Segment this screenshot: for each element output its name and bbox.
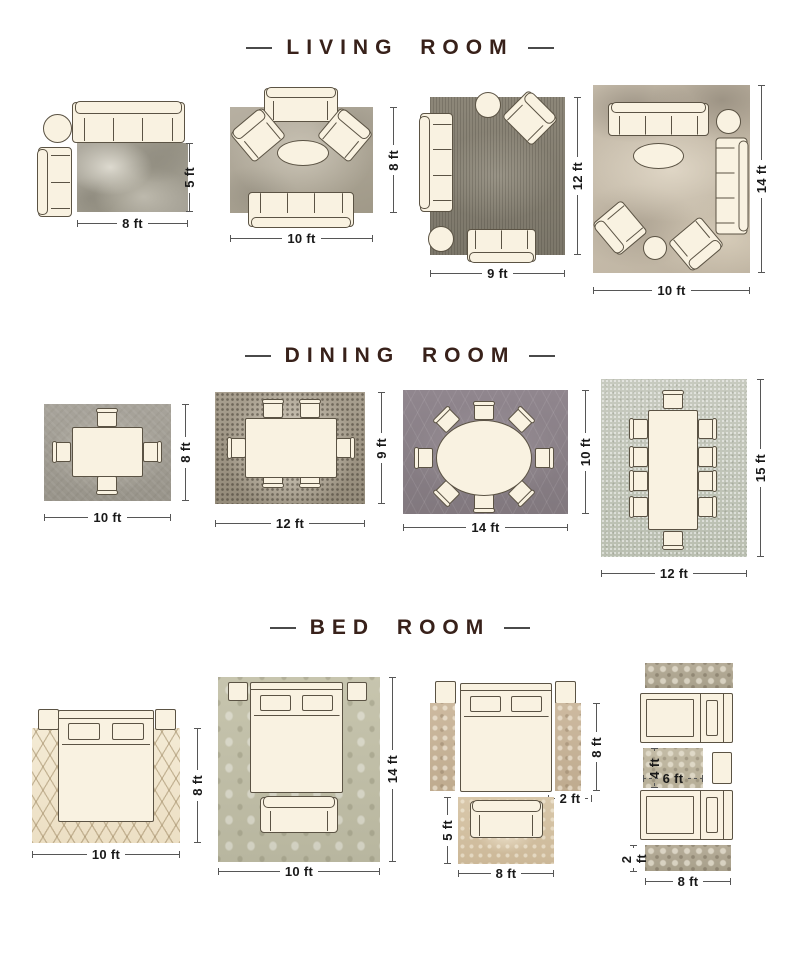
living2-sofa-bottom (248, 192, 354, 227)
dining2-table (245, 418, 337, 478)
living2-oval-coffee-table (277, 140, 329, 166)
dim-line (761, 198, 762, 273)
dining3-chair-left (415, 448, 433, 468)
dim-label: 5 ft (182, 167, 197, 188)
dim-line (321, 238, 373, 239)
bed2-bench (260, 797, 338, 833)
living3-pouf-bottom (428, 226, 454, 252)
living3-width-dim: 9 ft (430, 266, 565, 281)
dim-line (392, 789, 393, 862)
dim-label: 8 ft (122, 216, 143, 231)
dining4-chair-right4 (698, 497, 716, 517)
dim-label: 6 ft (663, 771, 684, 786)
dim-label: 8 ft (678, 874, 699, 889)
dim-label: 2 ft (619, 854, 649, 863)
dim-line (521, 873, 554, 874)
bed4-middle-width-dim: 6 ft (643, 771, 703, 786)
bed4-twin-bed-bottom (640, 790, 733, 840)
dining4-chair-left4 (630, 497, 648, 517)
bed1-height-dim: 8 ft (190, 728, 205, 843)
living4-width-dim: 10 ft (593, 283, 750, 298)
dim-line (688, 778, 703, 779)
section-title-label: LIVING ROOM (286, 36, 513, 60)
dim-line (513, 273, 565, 274)
dining4-chair-left2 (630, 447, 648, 467)
dim-line (601, 573, 655, 574)
bed2-nightstand-right (347, 682, 367, 701)
living4-height-dim: 14 ft (754, 85, 769, 273)
section-title-living: LIVING ROOM (0, 36, 800, 60)
dim-line (633, 868, 634, 872)
bed4-runner-height-dim: 2 ft (626, 845, 641, 871)
bed3-loveseat (470, 801, 543, 838)
dim-line (381, 463, 382, 504)
dim-label: 15 ft (753, 454, 768, 482)
dining1-chair-right (143, 442, 161, 462)
dim-line (458, 873, 491, 874)
dim-line (505, 527, 568, 528)
dining1-width-dim: 10 ft (44, 510, 171, 525)
dim-label: 10 ft (578, 438, 593, 466)
dim-line (585, 471, 586, 514)
dim-line (393, 175, 394, 213)
dim-label: 8 ft (190, 775, 205, 796)
dining2-width-dim: 12 ft (215, 516, 365, 531)
dining4-chair-right3 (698, 471, 716, 491)
dim-line (577, 97, 578, 157)
living2-width-dim: 10 ft (230, 231, 373, 246)
dim-line (693, 573, 747, 574)
dim-line (596, 703, 597, 732)
dim-line (761, 85, 762, 160)
title-dash (528, 47, 554, 50)
dining1-height-dim: 8 ft (178, 404, 193, 501)
dining3-chair-top (474, 402, 494, 420)
dim-label: 10 ft (287, 231, 315, 246)
dining4-chair-bottom (663, 531, 683, 549)
title-dash (529, 355, 555, 358)
bed4-twin-bed-top (640, 693, 733, 743)
bed3-runner-width-dim: 2 ft (548, 791, 592, 806)
dim-line (32, 854, 87, 855)
dining4-chair-left3 (630, 471, 648, 491)
bed4-runner-top (645, 663, 733, 688)
dim-line (585, 798, 592, 799)
bed1-bed (58, 710, 154, 822)
dim-line (585, 390, 586, 433)
dining3-width-dim: 14 ft (403, 520, 568, 535)
bed3-foot-width-dim: 8 ft (458, 866, 554, 881)
title-dash (245, 355, 271, 358)
dim-line (393, 107, 394, 145)
section-title-label: BED ROOM (310, 616, 491, 640)
living4-sofa-top (608, 103, 709, 136)
living1-chaise (38, 147, 72, 217)
dim-label: 8 ft (496, 866, 517, 881)
bed2-width-dim: 10 ft (218, 864, 380, 879)
dim-label: 9 ft (487, 266, 508, 281)
dim-line (447, 797, 448, 815)
dining1-chair-top (97, 409, 117, 427)
dim-line (392, 677, 393, 750)
bed3-nightstand-right (555, 681, 576, 704)
dim-label: 8 ft (589, 737, 604, 758)
dim-line (403, 527, 466, 528)
dining3-chair-right (535, 448, 553, 468)
living1-sofa (72, 102, 185, 143)
dim-line (691, 290, 750, 291)
dim-label: 5 ft (440, 820, 455, 841)
bed3-nightstand-left (435, 681, 456, 704)
dim-line (577, 195, 578, 255)
dim-line (430, 273, 482, 274)
dim-label: 10 ft (285, 864, 313, 879)
title-dash (504, 627, 530, 630)
dim-line (760, 379, 761, 449)
living1-width-dim: 8 ft (77, 216, 188, 231)
living3-height-dim: 12 ft (570, 97, 585, 255)
dim-line (189, 143, 190, 162)
dim-line (381, 392, 382, 433)
bed3-runner-height-dim: 8 ft (589, 703, 604, 791)
dim-label: 8 ft (178, 442, 193, 463)
dining4-width-dim: 12 ft (601, 566, 747, 581)
bed2-nightstand-left (228, 682, 248, 701)
bed3-runner-right (555, 703, 581, 791)
dining4-chair-top (663, 391, 683, 409)
section-title-label: DINING ROOM (285, 344, 516, 368)
living1-height-dim: 5 ft (182, 143, 197, 212)
bed2-bed (250, 682, 343, 793)
dining4-chair-right1 (698, 419, 716, 439)
dim-line (148, 223, 188, 224)
dim-label: 9 ft (374, 438, 389, 459)
dining2-height-dim: 9 ft (374, 392, 389, 504)
living3-pouf-top (475, 92, 501, 118)
dining1-chair-left (53, 442, 71, 462)
living3-sofa-left (420, 113, 453, 212)
dim-line (760, 487, 761, 557)
dim-line (218, 871, 280, 872)
living2-height-dim: 8 ft (386, 107, 401, 213)
section-title-bed: BED ROOM (0, 616, 800, 640)
dim-label: 14 ft (471, 520, 499, 535)
dim-line (189, 193, 190, 212)
dim-label: 2 ft (560, 791, 581, 806)
dim-line (633, 845, 634, 849)
living4-oval-coffee-table (633, 143, 684, 169)
dining1-table (72, 427, 143, 477)
dim-line (44, 517, 88, 518)
dim-line (230, 238, 282, 239)
dining1-chair-bottom (97, 476, 117, 494)
bed2-height-dim: 14 ft (385, 677, 400, 862)
dim-label: 12 ft (660, 566, 688, 581)
dim-label: 8 ft (386, 150, 401, 171)
living4-sofa-right (716, 138, 748, 235)
dining3-height-dim: 10 ft (578, 390, 593, 514)
dining2-chair-top1 (263, 400, 283, 418)
living2-sofa-top (264, 88, 338, 122)
bed3-bed (460, 683, 552, 792)
dim-line (309, 523, 365, 524)
bed3-foot-height-dim: 5 ft (440, 797, 455, 864)
dim-label: 14 ft (385, 755, 400, 783)
living1-rug (77, 143, 188, 212)
bed4-nightstand (712, 752, 732, 784)
bed1-nightstand-left (38, 709, 59, 730)
dim-label: 12 ft (276, 516, 304, 531)
dining4-table (648, 410, 698, 530)
dim-line (593, 290, 652, 291)
bed4-runner-bottom (645, 845, 731, 871)
dining4-chair-left1 (630, 419, 648, 439)
living4-pouf-small (643, 236, 667, 260)
dim-label: 12 ft (570, 162, 585, 190)
dim-line (215, 523, 271, 524)
dim-line (596, 762, 597, 791)
dim-line (654, 748, 655, 753)
dim-line (318, 871, 380, 872)
rug-size-guide: LIVING ROOM 5 ft 8 ft 8 ft 10 ft 12 ft 9… (0, 0, 800, 978)
dim-line (447, 846, 448, 864)
title-dash (246, 47, 272, 50)
dim-line (197, 801, 198, 843)
living3-loveseat (467, 229, 536, 262)
bed1-width-dim: 10 ft (32, 847, 180, 862)
section-title-dining: DINING ROOM (0, 344, 800, 368)
bed4-runner-width-dim: 8 ft (645, 874, 731, 889)
dim-label: 10 ft (657, 283, 685, 298)
dim-label: 10 ft (92, 847, 120, 862)
bed1-nightstand-right (155, 709, 176, 730)
dim-line (643, 778, 658, 779)
dining3-oval-table (436, 420, 532, 496)
dim-label: 14 ft (754, 165, 769, 193)
dining4-height-dim: 15 ft (753, 379, 768, 557)
bed3-runner-left (430, 703, 455, 791)
dim-line (645, 881, 673, 882)
title-dash (270, 627, 296, 630)
dim-line (185, 404, 186, 437)
dining2-chair-right (336, 438, 354, 458)
dining2-chair-top2 (300, 400, 320, 418)
dim-label: 10 ft (93, 510, 121, 525)
living4-pouf-top (716, 109, 741, 134)
dining2-chair-left (228, 438, 246, 458)
dim-line (77, 223, 117, 224)
dining3-chair-bottom (474, 494, 494, 512)
dim-line (703, 881, 731, 882)
dining4-chair-right2 (698, 447, 716, 467)
dim-line (197, 728, 198, 770)
dim-line (125, 854, 180, 855)
living1-round-side-table (43, 114, 72, 143)
dim-line (127, 517, 171, 518)
dim-line (185, 468, 186, 501)
